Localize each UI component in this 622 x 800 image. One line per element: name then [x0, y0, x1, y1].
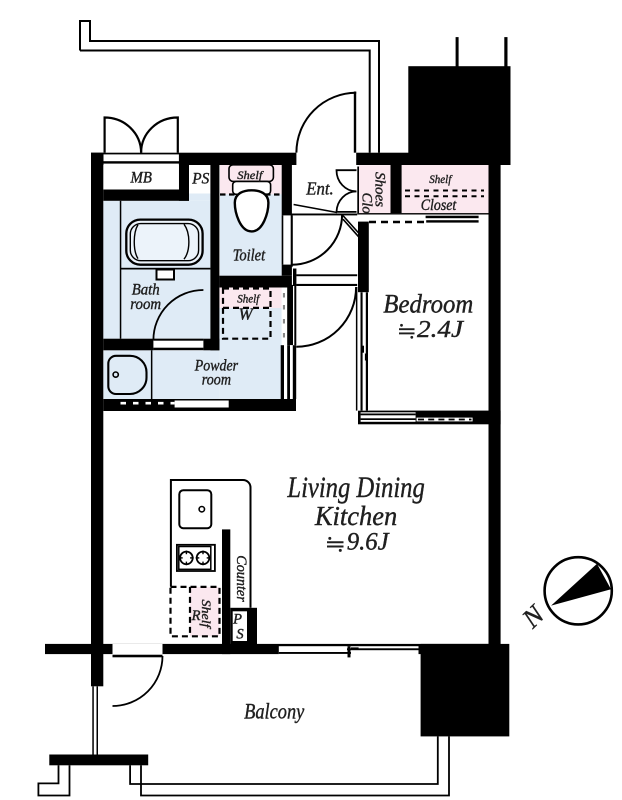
svg-text:Kitchen: Kitchen [314, 501, 397, 531]
svg-text:Balcony: Balcony [244, 699, 304, 724]
svg-text:Closet: Closet [421, 197, 457, 214]
svg-text:9.6J: 9.6J [347, 529, 391, 556]
svg-text:MB: MB [130, 169, 153, 186]
svg-text:Toilet: Toilet [233, 246, 266, 265]
svg-text:PS: PS [191, 171, 209, 188]
svg-text:S: S [236, 627, 244, 643]
svg-text:room: room [202, 372, 231, 389]
svg-text:Clo: Clo [358, 193, 374, 214]
svg-text:Counter: Counter [233, 555, 249, 602]
svg-text:room: room [130, 296, 161, 313]
svg-text:Shelf: Shelf [429, 172, 453, 186]
svg-text:P: P [232, 612, 242, 628]
svg-text:Ent.: Ent. [305, 178, 333, 198]
svg-text:Shelf: Shelf [237, 170, 264, 182]
svg-text:Bedroom: Bedroom [383, 290, 473, 319]
svg-text:W: W [239, 305, 255, 324]
svg-text:2.4J: 2.4J [417, 317, 465, 343]
svg-text:Shelf: Shelf [199, 600, 214, 631]
svg-text:Shelf: Shelf [237, 292, 261, 306]
svg-text:Living Dining: Living Dining [287, 471, 425, 504]
